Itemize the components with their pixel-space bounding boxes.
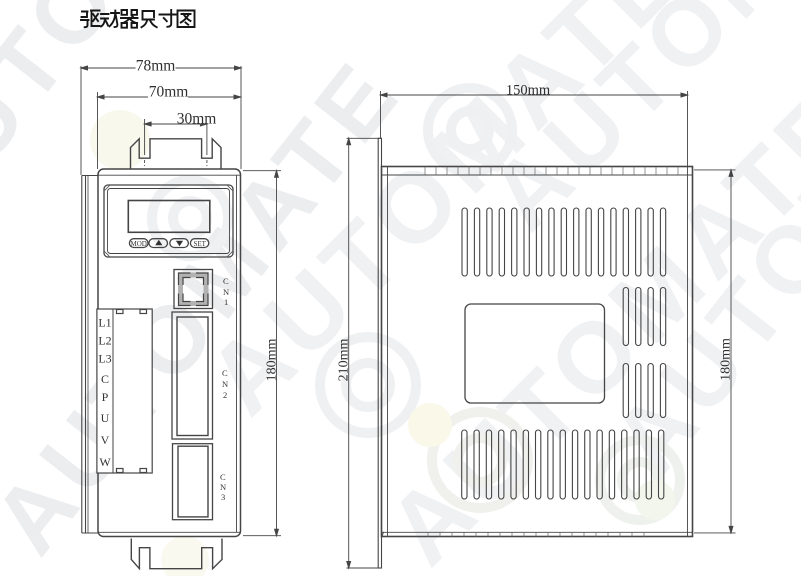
svg-text:L3: L3 xyxy=(98,352,111,366)
svg-text:180mm: 180mm xyxy=(719,338,734,381)
svg-text:N: N xyxy=(220,482,226,492)
svg-text:30mm: 30mm xyxy=(177,111,217,128)
svg-text:N: N xyxy=(222,379,228,389)
svg-text:2: 2 xyxy=(223,390,227,400)
svg-text:1: 1 xyxy=(224,297,228,307)
svg-text:V: V xyxy=(101,433,110,447)
svg-text:P: P xyxy=(102,390,109,404)
svg-text:C: C xyxy=(223,276,229,286)
svg-text:SET: SET xyxy=(193,240,206,248)
svg-text:C: C xyxy=(222,368,228,378)
svg-text:N: N xyxy=(223,287,229,297)
svg-text:78mm: 78mm xyxy=(136,58,176,75)
svg-text:W: W xyxy=(99,455,111,469)
svg-text:L2: L2 xyxy=(98,334,111,348)
svg-text:U: U xyxy=(101,411,110,425)
svg-text:150mm: 150mm xyxy=(506,83,551,99)
svg-text:210mm: 210mm xyxy=(337,339,352,382)
svg-text:180mm: 180mm xyxy=(264,339,279,382)
svg-text:3: 3 xyxy=(221,492,225,502)
svg-text:70mm: 70mm xyxy=(149,84,189,101)
svg-text:MOD: MOD xyxy=(131,240,147,248)
svg-text:C: C xyxy=(101,372,109,386)
svg-text:L1: L1 xyxy=(98,316,111,330)
svg-text:C: C xyxy=(220,472,226,482)
